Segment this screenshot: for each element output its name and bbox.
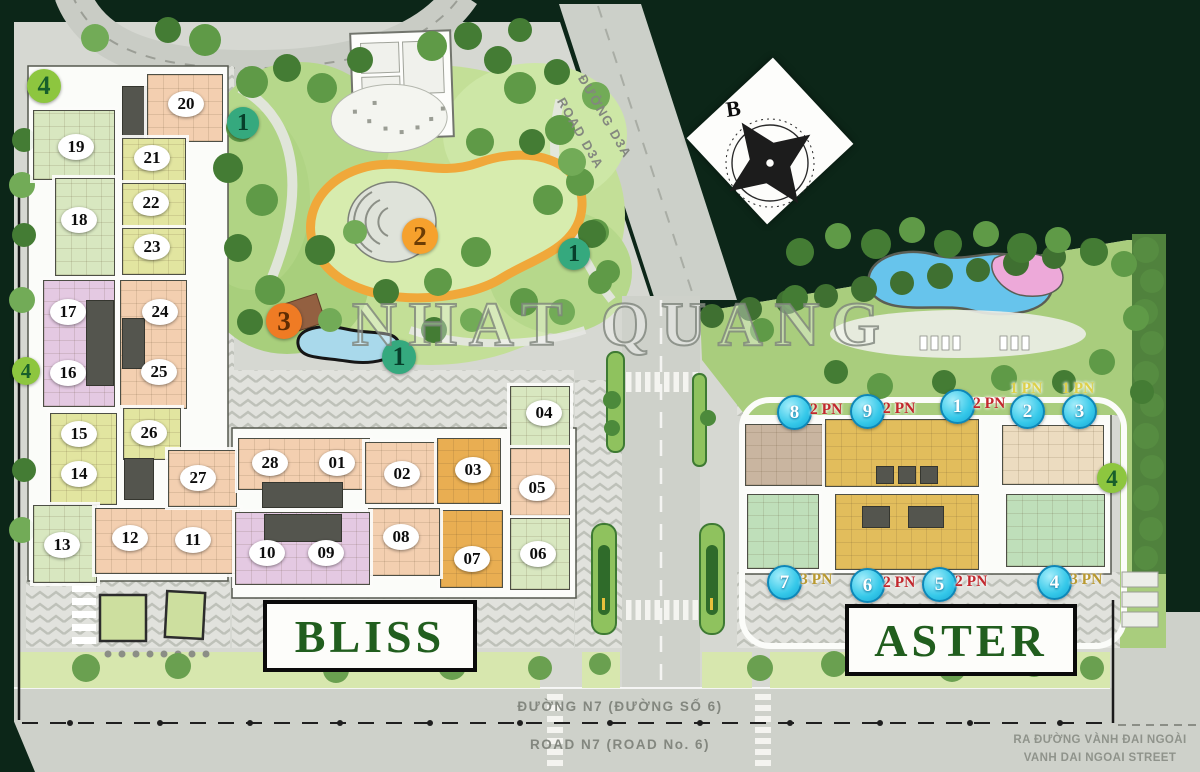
bliss-unit-label: 18 <box>61 207 97 233</box>
amenity-marker: 4 <box>27 69 61 103</box>
bliss-unit-label: 28 <box>252 450 288 476</box>
aster-unit-type-label: 2 PN <box>810 401 842 419</box>
bliss-unit-label: 23 <box>134 234 170 260</box>
amenity-marker: 1 <box>227 107 259 139</box>
aster-unit-marker: 3 <box>1062 394 1097 429</box>
bliss-unit-label: 10 <box>249 540 285 566</box>
exit-street-label-vi: RA ĐƯỜNG VÀNH ĐAI NGOÀI <box>1004 731 1196 749</box>
bliss-unit-label: 22 <box>133 190 169 216</box>
aster-unit-marker: 6 <box>850 568 885 603</box>
unit-block <box>747 494 819 569</box>
bliss-unit-label: 26 <box>131 420 167 446</box>
amenity-marker: 2 <box>402 218 438 254</box>
aster-unit-type-label: 1 PN <box>1010 380 1042 398</box>
unit-block <box>908 506 944 528</box>
aster-unit-type-label: 1 PN <box>1062 380 1094 398</box>
unit-block <box>1002 425 1104 485</box>
bliss-unit-label: 21 <box>134 145 170 171</box>
unit-block <box>898 466 916 484</box>
bliss-unit-label: 27 <box>180 465 216 491</box>
unit-block <box>862 506 890 528</box>
aster-unit-type-label: 2 PN <box>955 573 987 591</box>
compass: B <box>668 68 878 238</box>
bliss-unit-label: 16 <box>50 360 86 386</box>
bliss-unit-label: 25 <box>141 359 177 385</box>
unit-block <box>122 318 145 369</box>
bliss-unit-label: 08 <box>383 524 419 550</box>
unit-block <box>1006 494 1105 567</box>
bliss-unit-label: 04 <box>526 400 562 426</box>
bliss-name-label: BLISS <box>295 610 445 663</box>
aster-name-label: ASTER <box>874 614 1047 667</box>
bliss-unit-label: 02 <box>384 461 420 487</box>
road-n7-label-vi: ĐƯỜNG N7 (ĐƯỜNG SỐ 6) <box>455 699 785 714</box>
bliss-unit-label: 09 <box>308 540 344 566</box>
bliss-unit-label: 12 <box>112 525 148 551</box>
exit-street-label: RA ĐƯỜNG VÀNH ĐAI NGOÀI VANH DAI NGOAI S… <box>1004 731 1196 768</box>
aster-unit-type-label: 3 PN <box>800 571 832 589</box>
aster-unit-marker: 9 <box>850 394 885 429</box>
aster-unit-marker: 8 <box>777 395 812 430</box>
site-plan: B NHAT QUANG ĐƯỜNG D3A ROAD D3A ĐƯỜNG N7… <box>0 0 1200 772</box>
road-n7-label-en: ROAD N7 (ROAD No. 6) <box>465 737 775 752</box>
aster-name-box: ASTER <box>845 604 1077 676</box>
amenity-marker: 1 <box>558 238 590 270</box>
aster-unit-marker: 1 <box>940 389 975 424</box>
compass-north-label: B <box>724 95 742 123</box>
bliss-unit-label: 19 <box>58 134 94 160</box>
aster-unit-type-label: 2 PN <box>883 574 915 592</box>
bliss-unit-label: 05 <box>519 475 555 501</box>
aster-unit-type-label: 3 PN <box>1070 571 1102 589</box>
unit-block <box>745 424 825 486</box>
bliss-unit-label: 15 <box>61 421 97 447</box>
bliss-unit-label: 13 <box>44 532 80 558</box>
aster-unit-marker: 5 <box>922 567 957 602</box>
unit-block <box>124 458 154 500</box>
unit-block <box>835 494 979 570</box>
unit-block <box>876 466 894 484</box>
bliss-unit-label: 07 <box>454 546 490 572</box>
unit-block <box>262 482 343 508</box>
exit-street-label-en: VANH DAI NGOAI STREET <box>1004 749 1196 767</box>
aster-unit-marker: 2 <box>1010 394 1045 429</box>
unit-block <box>920 466 938 484</box>
unit-block <box>86 300 114 386</box>
bliss-name-box: BLISS <box>263 600 477 672</box>
watermark: NHAT QUANG <box>352 290 892 361</box>
bliss-unit-label: 03 <box>455 457 491 483</box>
bliss-unit-label: 01 <box>319 450 355 476</box>
bliss-unit-label: 14 <box>61 461 97 487</box>
bliss-unit-label: 06 <box>520 541 556 567</box>
bliss-unit-label: 17 <box>50 299 86 325</box>
bliss-unit-label: 24 <box>142 299 178 325</box>
aster-unit-marker: 7 <box>767 565 802 600</box>
amenity-marker: 4 <box>12 357 40 385</box>
amenity-marker: 3 <box>266 303 302 339</box>
aster-unit-type-label: 2 PN <box>973 395 1005 413</box>
aster-unit-marker: 4 <box>1037 565 1072 600</box>
bliss-unit-label: 11 <box>175 527 211 553</box>
amenity-marker: 4 <box>1097 463 1127 493</box>
bliss-unit-label: 20 <box>168 91 204 117</box>
unit-block <box>264 514 342 542</box>
aster-unit-type-label: 2 PN <box>883 400 915 418</box>
